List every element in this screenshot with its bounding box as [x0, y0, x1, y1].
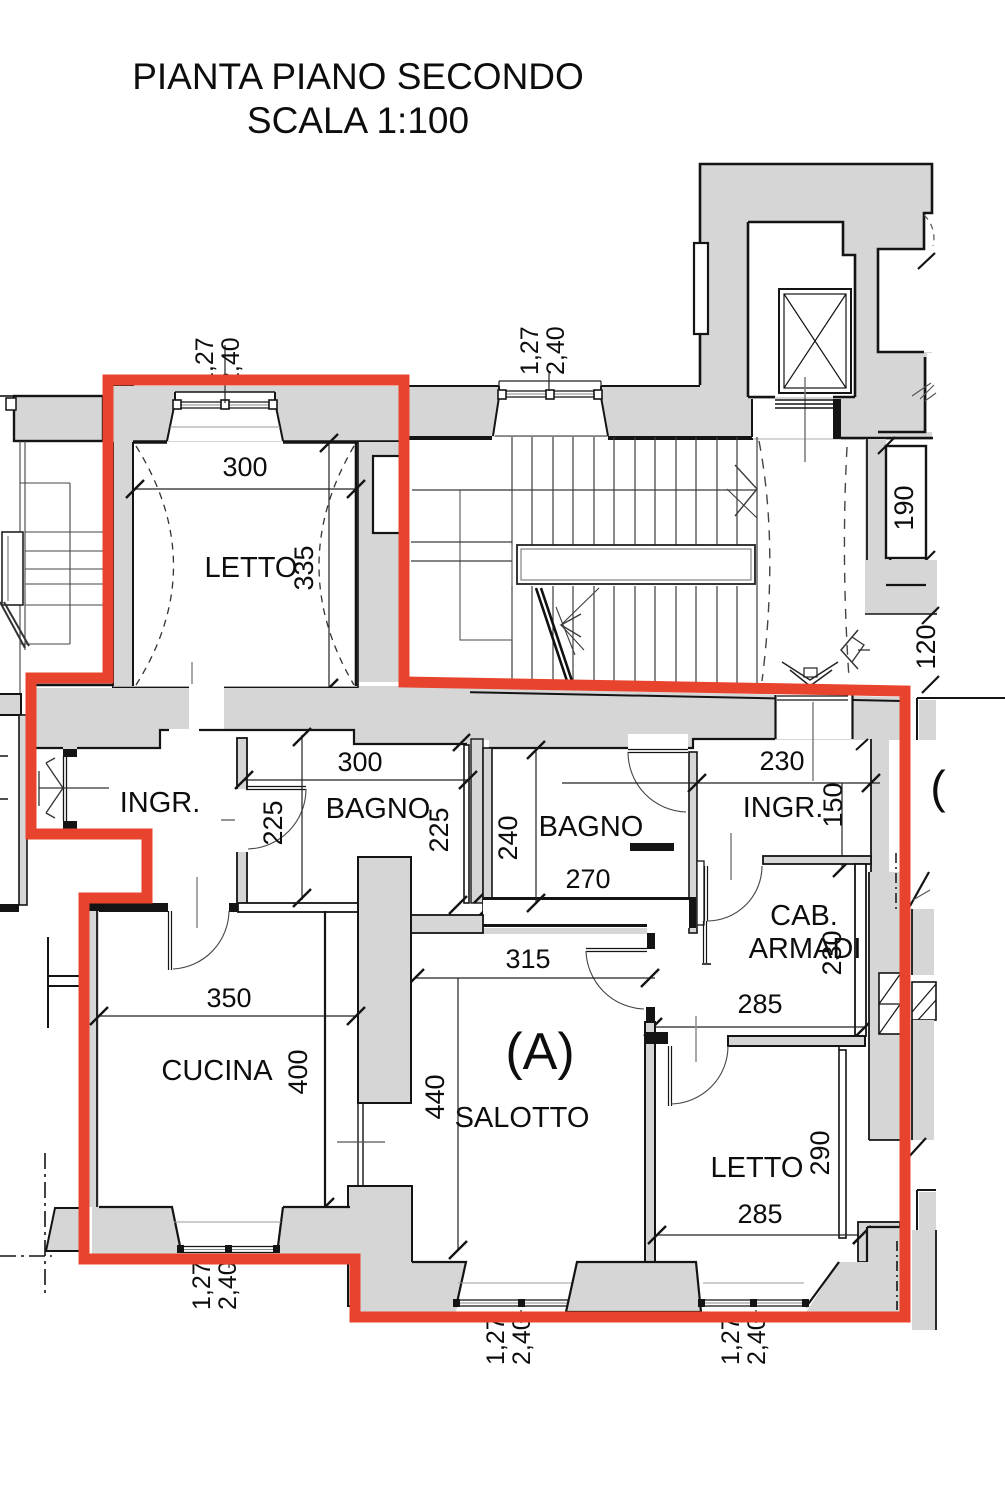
svg-text:BAGNO: BAGNO [539, 811, 644, 843]
svg-text:2,40: 2,40 [214, 1261, 242, 1310]
svg-text:SALOTTO: SALOTTO [455, 1102, 590, 1134]
svg-text:(A): (A) [505, 1023, 574, 1081]
svg-text:BAGNO: BAGNO [326, 793, 431, 825]
svg-text:225: 225 [258, 800, 288, 845]
svg-text:PIANTA PIANO SECONDO: PIANTA PIANO SECONDO [132, 56, 584, 97]
svg-text:400: 400 [283, 1049, 313, 1094]
svg-text:230: 230 [817, 930, 847, 975]
svg-text:300: 300 [337, 747, 382, 777]
svg-text:350: 350 [206, 983, 251, 1013]
svg-text:2,40: 2,40 [508, 1316, 536, 1365]
svg-text:1,27: 1,27 [516, 326, 544, 375]
svg-text:LETTO: LETTO [205, 552, 298, 584]
svg-text:335: 335 [289, 545, 319, 590]
svg-text:1,27: 1,27 [188, 1261, 216, 1310]
svg-text:285: 285 [737, 989, 782, 1019]
svg-text:440: 440 [420, 1074, 450, 1119]
svg-text:150: 150 [818, 782, 848, 827]
svg-text:SCALA 1:100: SCALA 1:100 [247, 100, 469, 141]
svg-text:190: 190 [889, 485, 919, 530]
svg-text:INGR.: INGR. [743, 792, 824, 824]
svg-text:INGR.: INGR. [120, 787, 201, 819]
svg-text:120: 120 [911, 624, 941, 669]
svg-text:2,40: 2,40 [743, 1316, 771, 1365]
svg-text:290: 290 [805, 1130, 835, 1175]
svg-text:1,27: 1,27 [482, 1316, 510, 1365]
svg-text:1,27: 1,27 [717, 1316, 745, 1365]
svg-text:315: 315 [505, 944, 550, 974]
svg-text:CUCINA: CUCINA [161, 1055, 273, 1087]
svg-text:270: 270 [565, 864, 610, 894]
svg-text:CAB.: CAB. [770, 900, 838, 932]
svg-text:240: 240 [493, 815, 523, 860]
svg-text:LETTO: LETTO [711, 1152, 804, 1184]
svg-text:2,40: 2,40 [542, 326, 570, 375]
svg-text:300: 300 [222, 452, 267, 482]
svg-text:285: 285 [737, 1199, 782, 1229]
svg-text:225: 225 [424, 807, 454, 852]
svg-text:230: 230 [759, 746, 804, 776]
svg-text:(: ( [930, 761, 946, 813]
